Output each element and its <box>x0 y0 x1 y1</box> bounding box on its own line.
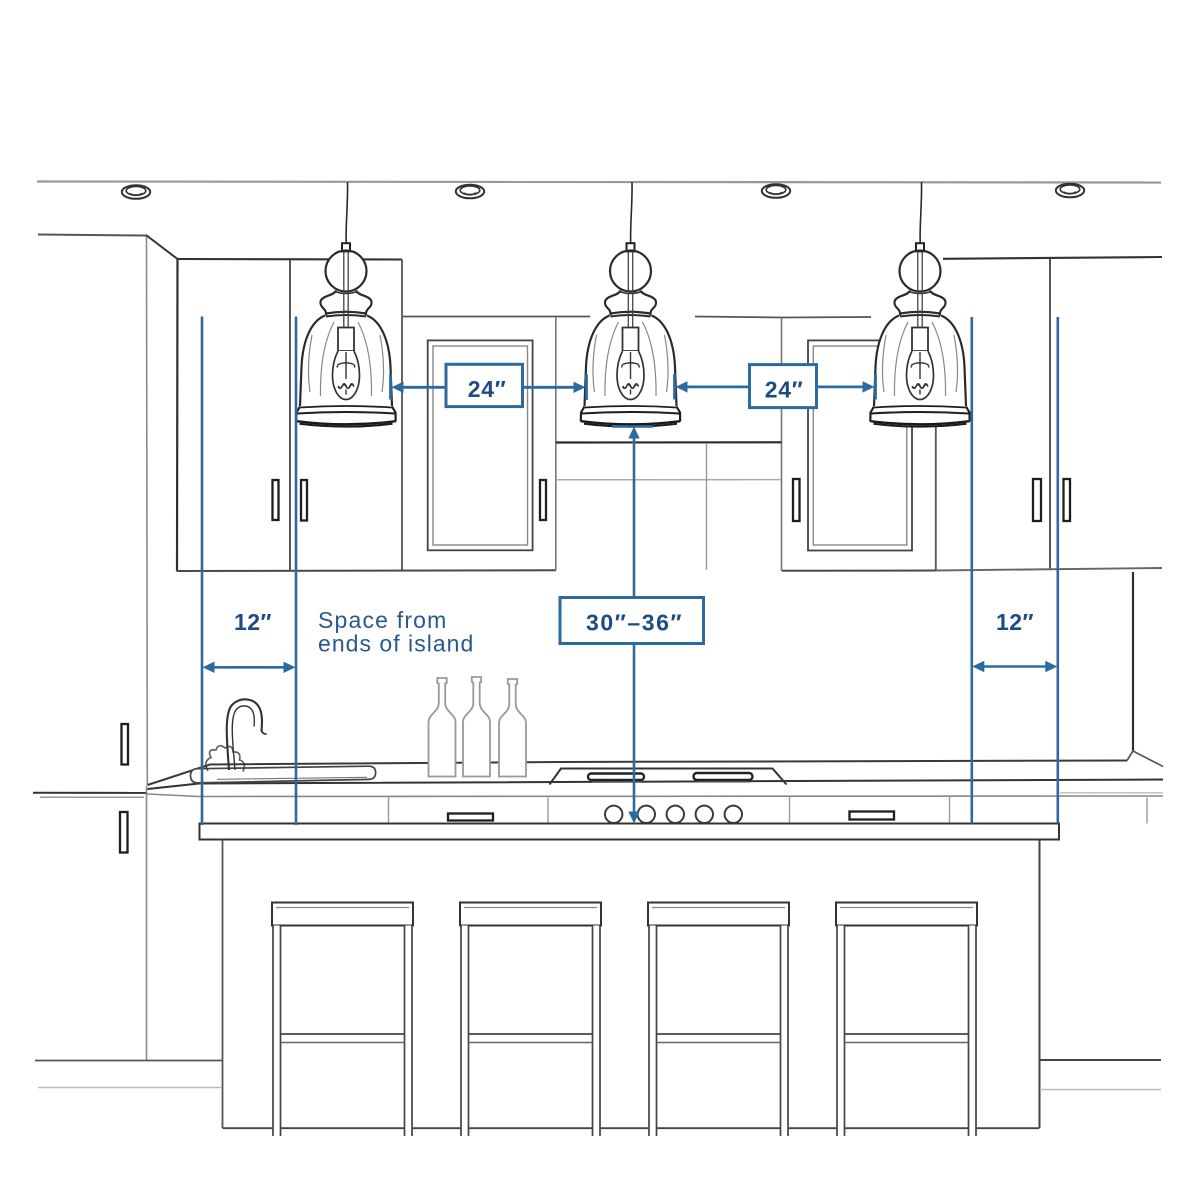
svg-text:ends of island: ends of island <box>318 631 476 657</box>
svg-text:12″: 12″ <box>234 609 272 635</box>
svg-text:24″: 24″ <box>468 376 507 402</box>
svg-text:24″: 24″ <box>765 377 804 403</box>
svg-text:30″–36″: 30″–36″ <box>586 610 682 636</box>
svg-text:12″: 12″ <box>996 609 1034 635</box>
svg-text:Space from: Space from <box>318 607 449 633</box>
